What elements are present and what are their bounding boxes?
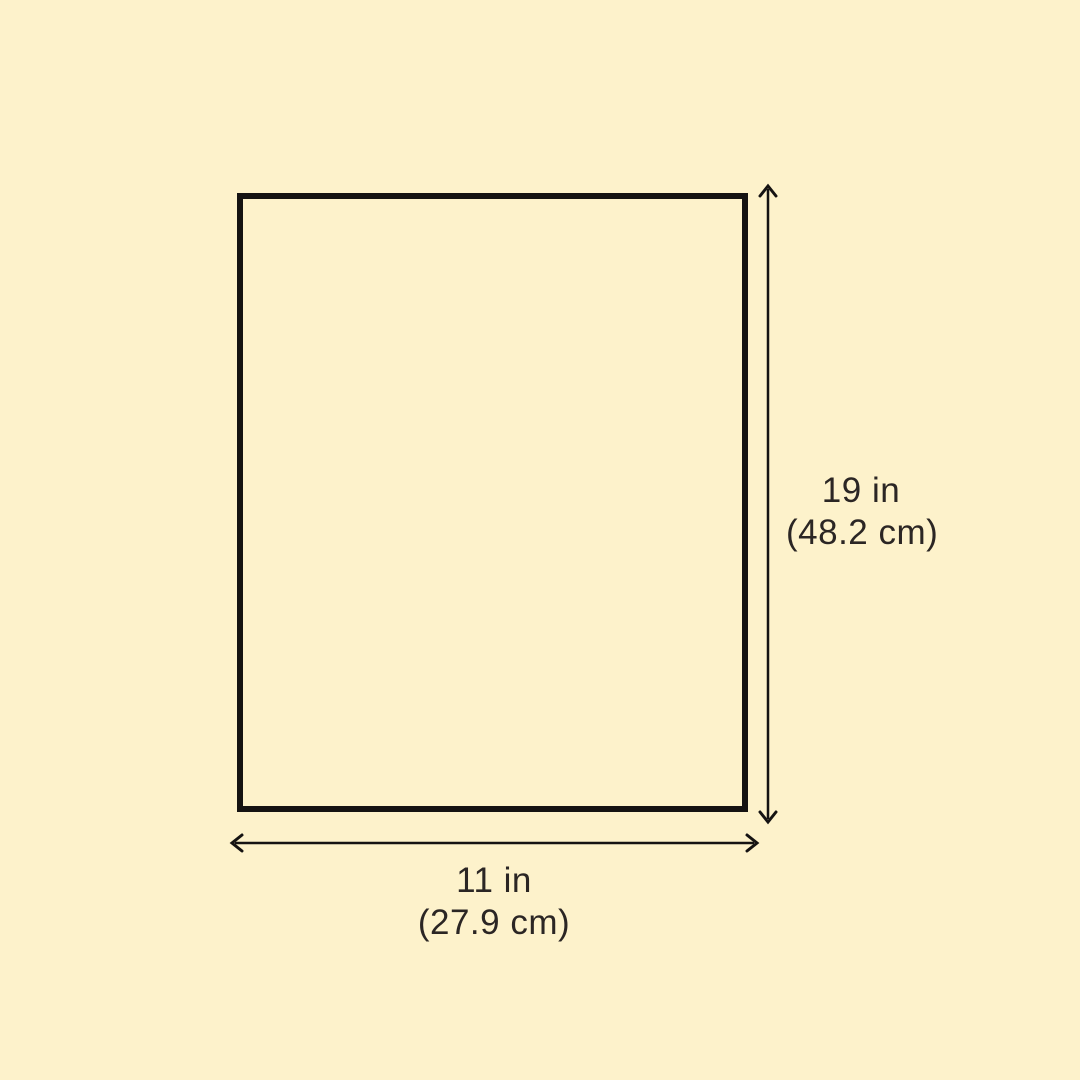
width-dimension-label: 11 in (27.9 cm)	[394, 860, 594, 944]
height-value-inches: 19 in	[786, 470, 936, 512]
dimension-diagram: 19 in (48.2 cm) 11 in (27.9 cm)	[0, 0, 1080, 1080]
rectangle-outline	[237, 193, 748, 812]
height-value-centimeters: (48.2 cm)	[786, 512, 936, 554]
width-arrow-left-chevron-icon	[232, 835, 242, 851]
width-value-centimeters: (27.9 cm)	[394, 902, 594, 944]
width-value-inches: 11 in	[394, 860, 594, 902]
height-dimension-label: 19 in (48.2 cm)	[786, 470, 936, 554]
width-arrow-right-chevron-icon	[747, 835, 757, 851]
height-arrow-top-chevron-icon	[760, 186, 776, 196]
height-arrow-bottom-chevron-icon	[760, 812, 776, 822]
